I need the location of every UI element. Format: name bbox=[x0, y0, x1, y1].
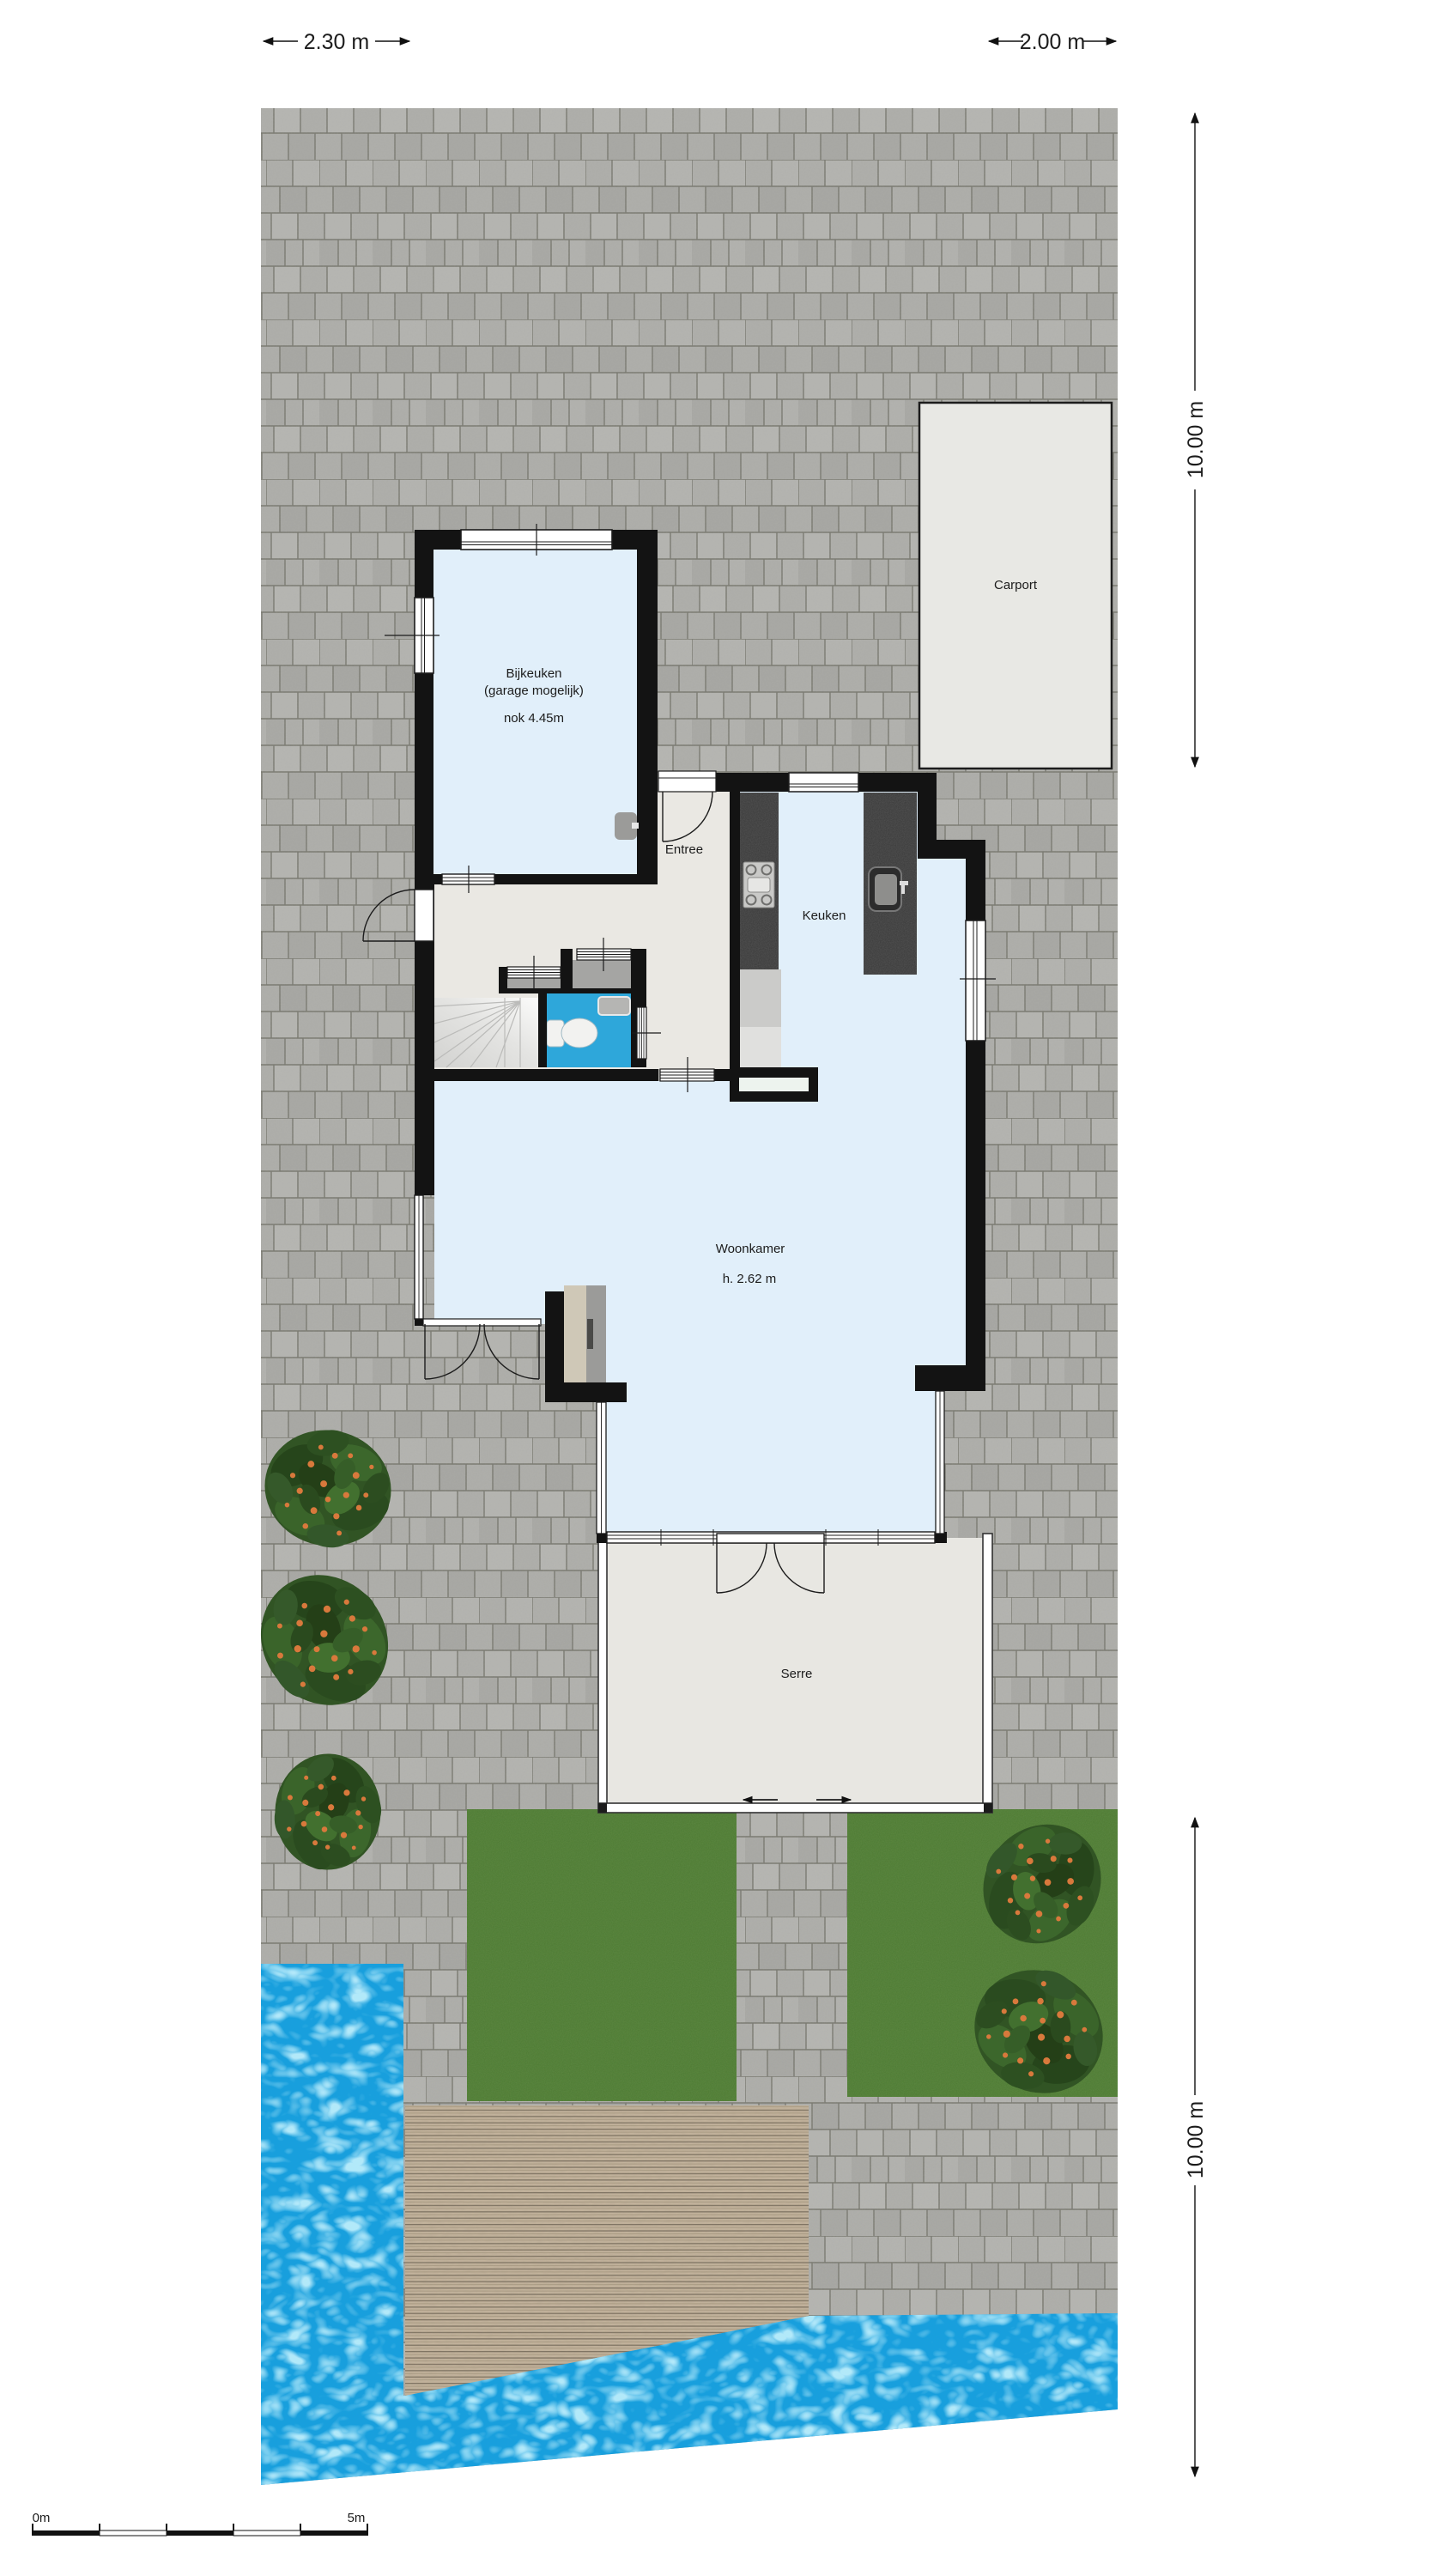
svg-text:Woonkamer: Woonkamer bbox=[716, 1242, 785, 1256]
svg-text:Keuken: Keuken bbox=[803, 908, 846, 923]
svg-text:0m: 0m bbox=[33, 2511, 51, 2525]
svg-text:5m: 5m bbox=[348, 2511, 366, 2525]
svg-text:Carport: Carport bbox=[994, 578, 1038, 592]
svg-text:10.00 m: 10.00 m bbox=[1184, 401, 1208, 478]
svg-text:2.30 m: 2.30 m bbox=[304, 30, 369, 54]
svg-text:nok 4.45m: nok 4.45m bbox=[504, 711, 564, 726]
svg-text:(garage mogelijk): (garage mogelijk) bbox=[484, 683, 584, 698]
svg-text:10.00 m: 10.00 m bbox=[1184, 2101, 1208, 2178]
svg-text:2.00 m: 2.00 m bbox=[1020, 30, 1085, 54]
svg-text:Bijkeuken: Bijkeuken bbox=[506, 666, 561, 681]
svg-text:Entree: Entree bbox=[665, 842, 703, 857]
svg-text:h. 2.62 m: h. 2.62 m bbox=[723, 1272, 777, 1286]
svg-text:Serre: Serre bbox=[781, 1667, 813, 1681]
